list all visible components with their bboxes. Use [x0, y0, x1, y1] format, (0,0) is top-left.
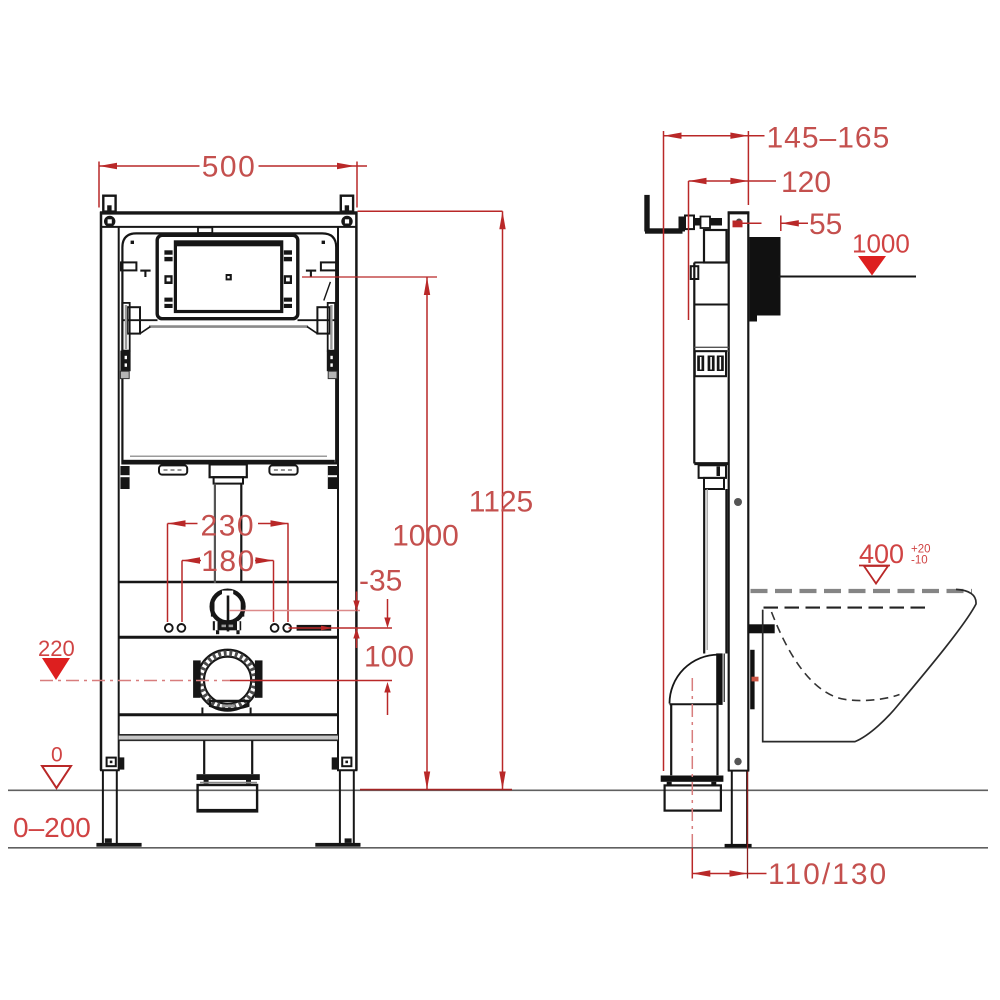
svg-text:0–200: 0–200	[13, 812, 91, 843]
svg-text:100: 100	[364, 641, 414, 674]
svg-text:110/130: 110/130	[768, 858, 888, 891]
svg-text:500: 500	[202, 151, 257, 184]
svg-text:1000: 1000	[392, 520, 459, 553]
svg-text:230: 230	[201, 510, 256, 543]
svg-text:-35: -35	[359, 565, 402, 598]
svg-text:400: 400	[859, 539, 904, 569]
svg-text:-10: -10	[911, 555, 928, 567]
svg-text:1000: 1000	[852, 229, 910, 259]
svg-text:220: 220	[38, 636, 75, 661]
svg-text:0: 0	[51, 744, 63, 767]
svg-text:120: 120	[781, 166, 831, 199]
svg-text:145–165: 145–165	[767, 122, 891, 155]
svg-text:180: 180	[201, 545, 256, 578]
svg-text:55: 55	[809, 208, 842, 241]
svg-text:1125: 1125	[469, 486, 534, 519]
